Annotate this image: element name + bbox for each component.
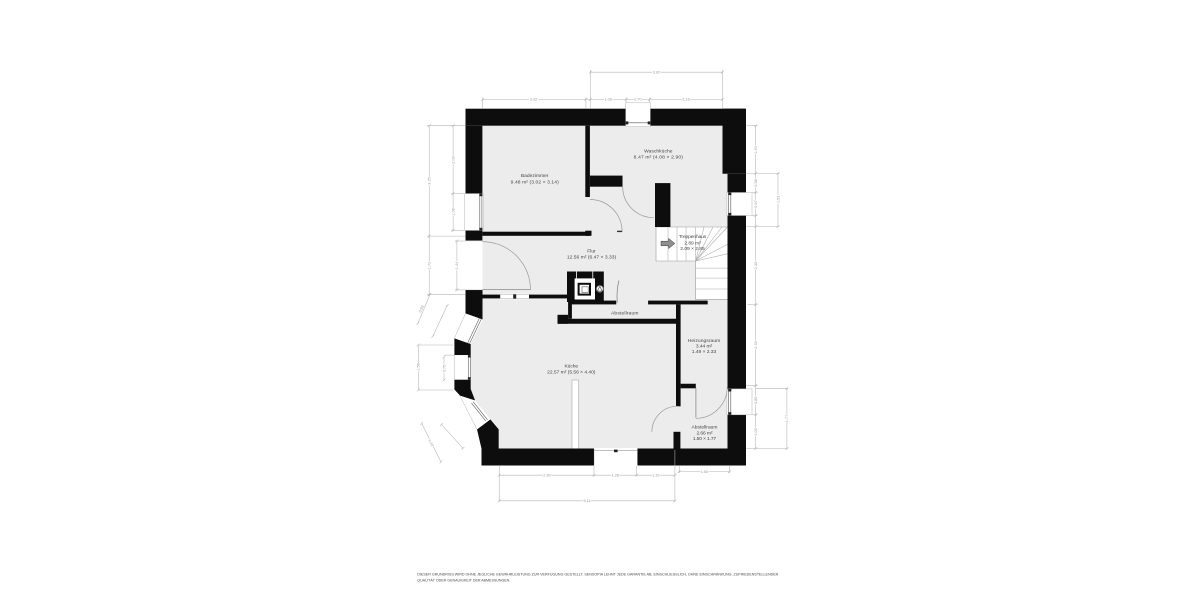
svg-text:2.16: 2.16 (682, 98, 689, 102)
svg-text:1.72: 1.72 (428, 262, 432, 269)
svg-text:2.30: 2.30 (754, 262, 758, 269)
svg-text:Waschküche: Waschküche (644, 148, 673, 154)
svg-text:1.06: 1.06 (605, 98, 612, 102)
svg-text:2.66 m²: 2.66 m² (697, 431, 713, 437)
svg-text:1.40: 1.40 (754, 146, 758, 153)
svg-text:2.09 × 2.85: 2.09 × 2.85 (680, 246, 705, 252)
svg-text:2.33: 2.33 (754, 341, 758, 348)
svg-text:1.08: 1.08 (451, 208, 455, 215)
svg-text:3.44 m²: 3.44 m² (696, 344, 713, 350)
svg-text:Küche: Küche (565, 363, 579, 369)
svg-text:12.56 m² (6.47 × 3.33): 12.56 m² (6.47 × 3.33) (567, 254, 617, 260)
svg-text:1.77: 1.77 (785, 415, 789, 422)
svg-text:0.85: 0.85 (754, 397, 758, 404)
svg-text:22.57 m² (5.56 × 4.40): 22.57 m² (5.56 × 4.40) (547, 370, 596, 376)
svg-text:0.70: 0.70 (634, 98, 641, 102)
svg-text:DIESER GRUNDRISS WIRD OHNE JEG: DIESER GRUNDRISS WIRD OHNE JEGLICHE GEWÄ… (417, 572, 778, 577)
svg-text:1.00: 1.00 (754, 428, 758, 435)
svg-text:1.28: 1.28 (612, 474, 619, 478)
svg-text:Heizungsraum: Heizungsraum (688, 338, 721, 344)
svg-text:3.25: 3.25 (428, 177, 432, 184)
svg-text:Treppenhaus: Treppenhaus (679, 234, 707, 240)
svg-text:2.89 m²: 2.89 m² (684, 240, 701, 246)
svg-text:2.80: 2.80 (543, 474, 550, 478)
svg-text:3.92: 3.92 (653, 71, 660, 75)
svg-text:QUALITÄT ODER GENAUIGKEIT DER: QUALITÄT ODER GENAUIGKEIT DER ABMESSUNGE… (417, 578, 510, 583)
svg-text:1.53: 1.53 (776, 196, 780, 203)
svg-text:0.56: 0.56 (754, 179, 758, 186)
svg-text:8.47 m² (4.08 × 2.90): 8.47 m² (4.08 × 2.90) (634, 155, 684, 161)
svg-text:Badezimmer: Badezimmer (521, 173, 549, 179)
svg-text:0.67: 0.67 (754, 200, 758, 207)
svg-text:3.02: 3.02 (530, 98, 537, 102)
svg-text:9.48 m² (3.02 × 3.14): 9.48 m² (3.02 × 3.14) (511, 180, 559, 186)
svg-text:Abstellraum: Abstellraum (611, 311, 639, 317)
svg-text:1.49 × 2.33: 1.49 × 2.33 (692, 349, 717, 355)
svg-text:5.11: 5.11 (583, 499, 590, 503)
svg-text:1.58: 1.58 (417, 363, 421, 370)
svg-text:Flur: Flur (587, 248, 596, 254)
svg-text:1.44: 1.44 (455, 262, 459, 269)
svg-text:Abstellraum: Abstellraum (692, 425, 718, 431)
svg-text:1.50 × 1.77: 1.50 × 1.77 (693, 436, 717, 442)
svg-text:2.00: 2.00 (451, 156, 455, 163)
svg-text:1.15: 1.15 (652, 474, 659, 478)
svg-text:1.50: 1.50 (701, 470, 708, 474)
svg-text:0.75: 0.75 (442, 365, 446, 372)
